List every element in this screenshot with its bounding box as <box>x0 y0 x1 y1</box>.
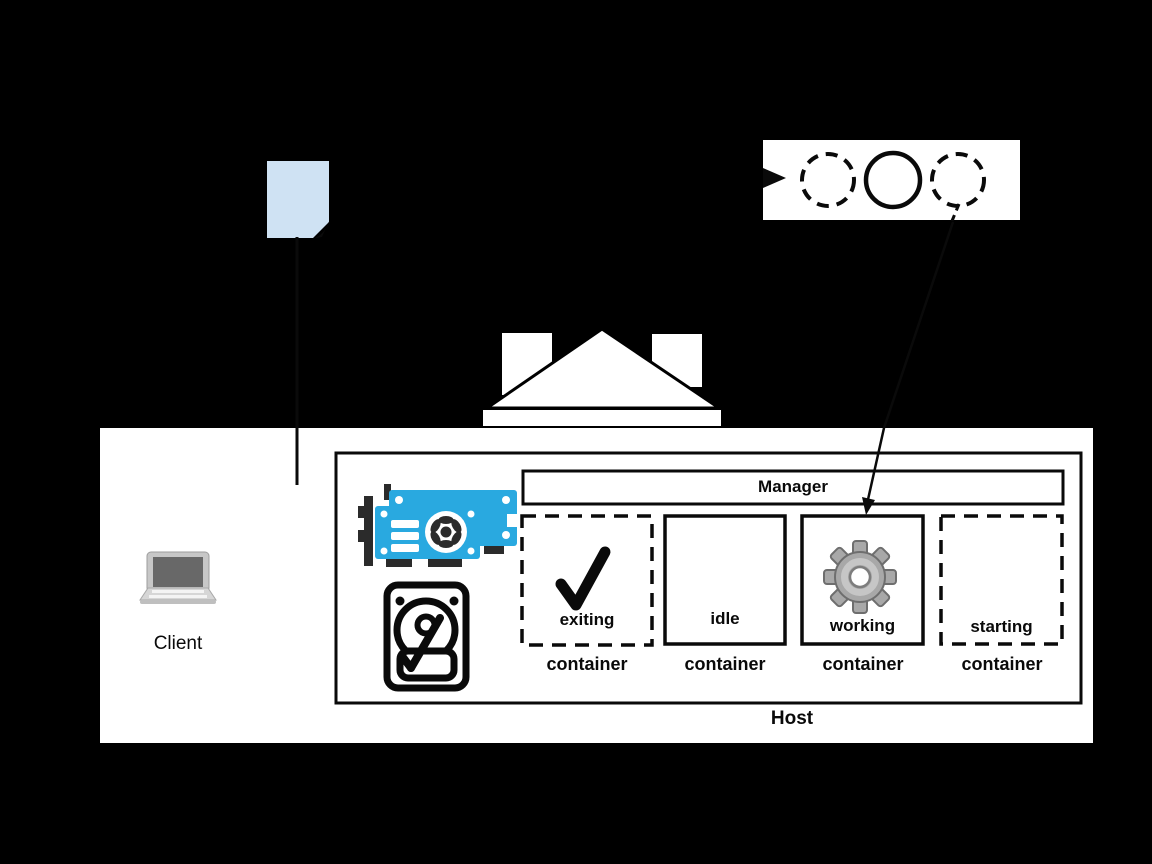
container-label-2: container <box>650 655 800 675</box>
host-label: Host <box>692 709 892 730</box>
container-state-working: working <box>802 617 923 636</box>
container-label-4: container <box>927 655 1077 675</box>
state-circles <box>763 140 1020 221</box>
house-icon <box>483 329 721 426</box>
fan-icon <box>425 511 467 553</box>
client-label: Client <box>128 634 228 655</box>
diagram-shapes <box>0 0 1152 864</box>
document-icon <box>267 161 329 239</box>
laptop-icon <box>140 552 216 604</box>
diagram-canvas: Client Manager exiting idle working star… <box>0 0 1152 864</box>
container-label-3: container <box>788 655 938 675</box>
container-state-starting: starting <box>941 618 1062 637</box>
gear-icon <box>824 541 896 613</box>
container-label-1: container <box>512 655 662 675</box>
manager-label: Manager <box>523 478 1063 497</box>
hdd-icon <box>387 585 466 688</box>
container-state-idle: idle <box>665 610 785 629</box>
container-state-exiting: exiting <box>522 611 652 630</box>
